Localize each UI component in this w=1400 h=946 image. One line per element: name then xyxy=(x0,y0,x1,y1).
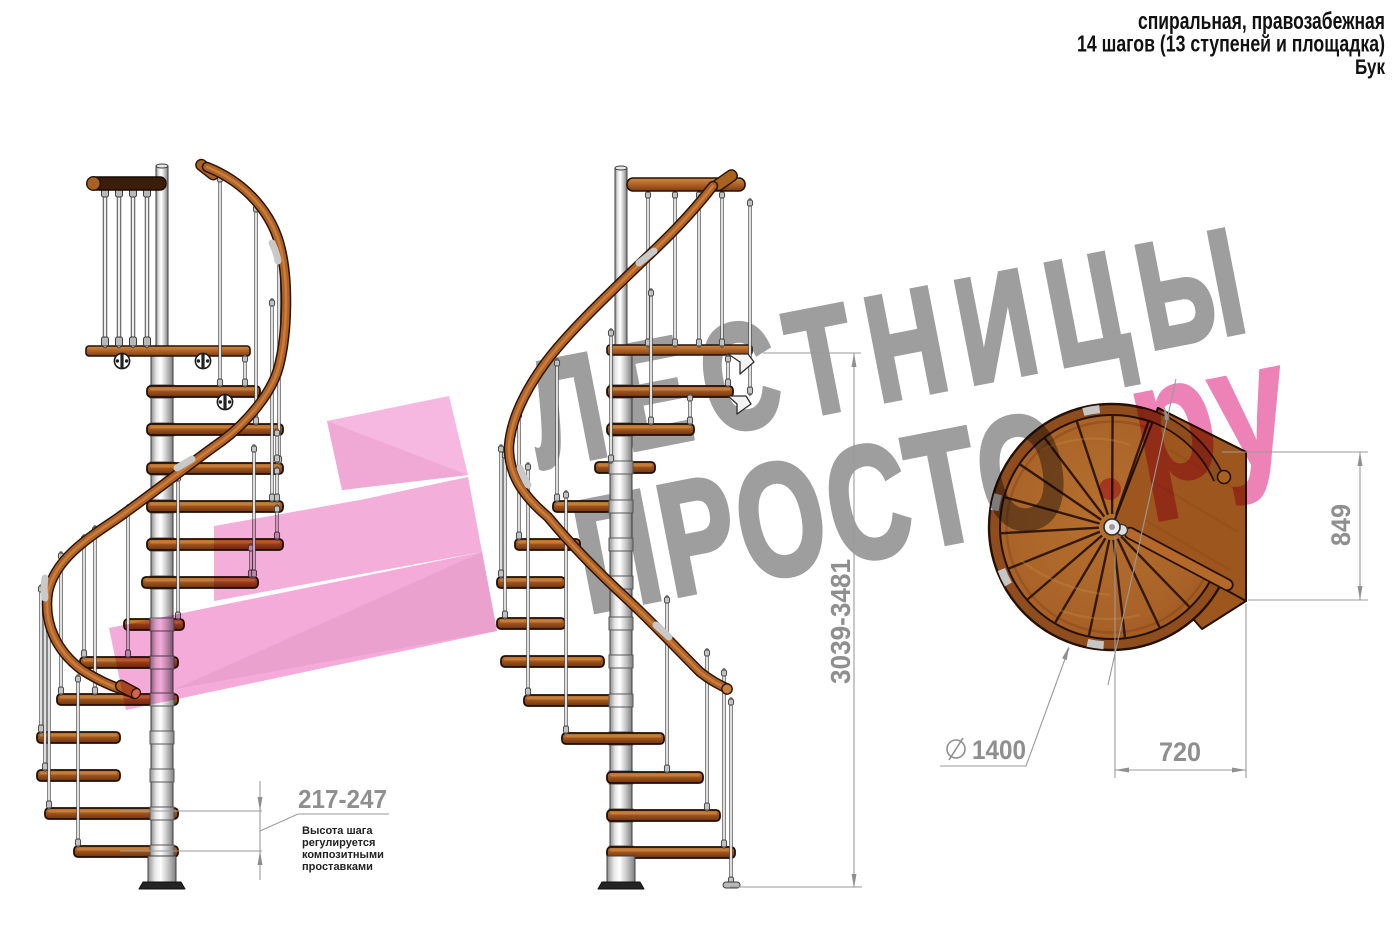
svg-text:849: 849 xyxy=(1326,504,1356,546)
svg-text:регулируется: регулируется xyxy=(302,837,375,849)
svg-text:217-247: 217-247 xyxy=(298,784,387,814)
svg-text:1400: 1400 xyxy=(972,735,1026,765)
svg-text:Высота шага: Высота шага xyxy=(302,825,373,837)
svg-text:проставками: проставками xyxy=(302,861,373,873)
svg-text:3039-3481: 3039-3481 xyxy=(825,559,856,684)
svg-text:композитными: композитными xyxy=(302,849,384,861)
svg-text:14 шагов (13 ступеней и площад: 14 шагов (13 ступеней и площадка) xyxy=(1077,31,1385,57)
svg-text:Бук: Бук xyxy=(1355,56,1385,79)
svg-text:720: 720 xyxy=(1159,737,1201,767)
